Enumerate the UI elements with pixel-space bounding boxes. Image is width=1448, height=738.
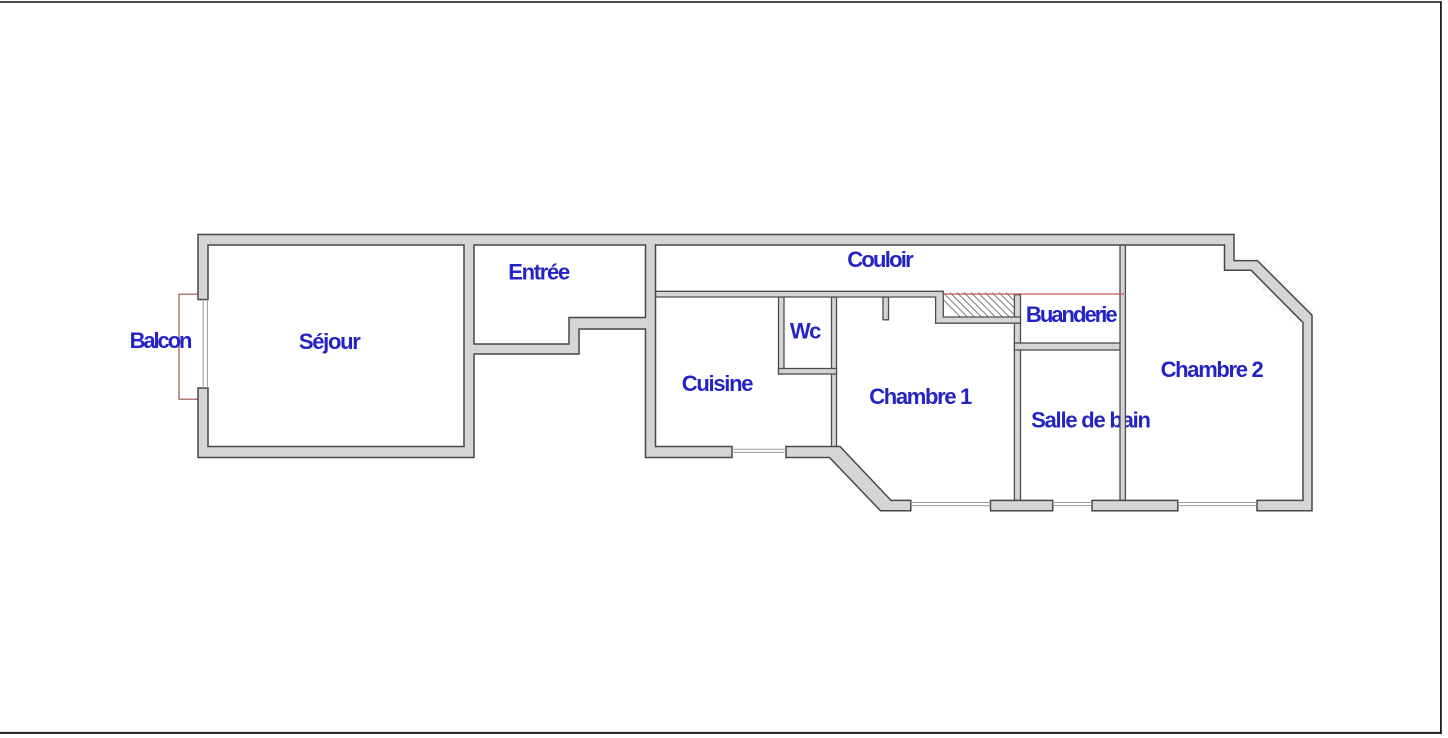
svg-text:Cuisine: Cuisine bbox=[682, 371, 754, 396]
svg-text:Chambre 1: Chambre 1 bbox=[869, 384, 972, 409]
svg-text:Couloir: Couloir bbox=[847, 247, 914, 272]
svg-text:Balcon: Balcon bbox=[130, 328, 192, 353]
svg-text:Chambre 2: Chambre 2 bbox=[1161, 357, 1264, 382]
svg-text:Salle de bain: Salle de bain bbox=[1031, 407, 1150, 432]
svg-text:Buanderie: Buanderie bbox=[1026, 302, 1118, 327]
svg-text:Entrée: Entrée bbox=[508, 259, 570, 284]
svg-text:Séjour: Séjour bbox=[299, 329, 361, 354]
svg-text:Wc: Wc bbox=[790, 319, 821, 344]
